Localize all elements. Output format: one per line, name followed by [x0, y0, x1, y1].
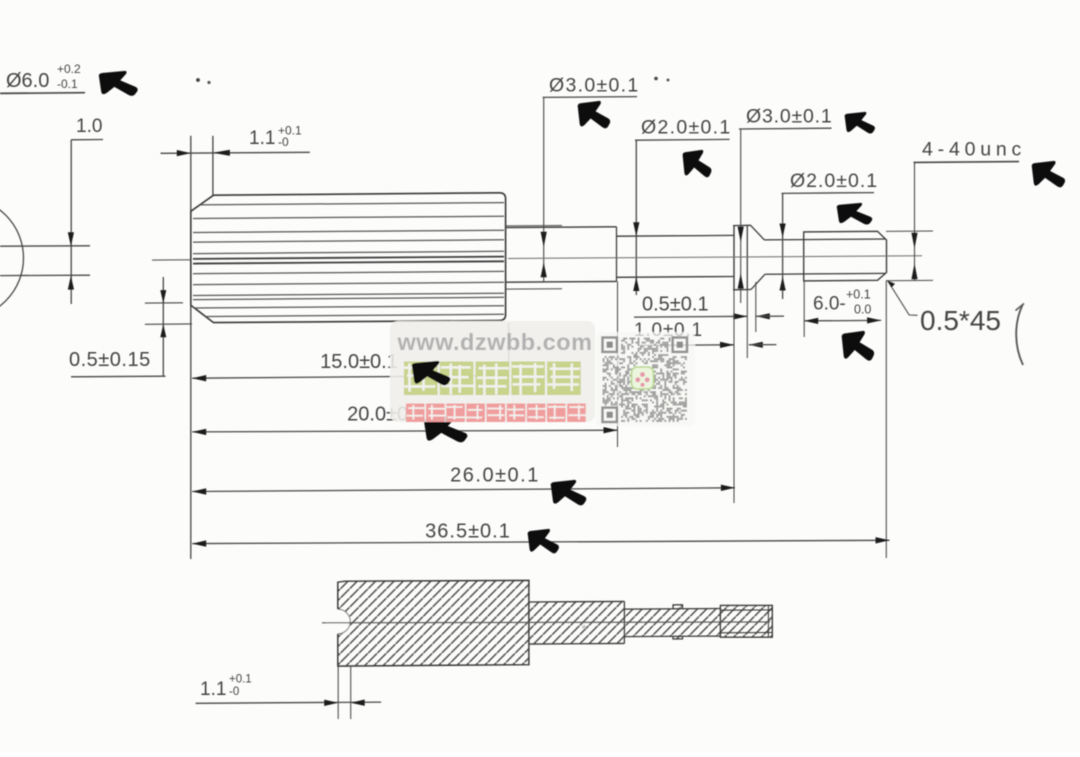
svg-text:6.0-: 6.0- [813, 294, 846, 315]
svg-text:+0.2: +0.2 [57, 62, 81, 76]
svg-text:Ø3.0±0.1: Ø3.0±0.1 [746, 106, 833, 128]
svg-text:15.0±0.1: 15.0±0.1 [320, 351, 398, 373]
svg-text:Ø2.0±0.1: Ø2.0±0.1 [641, 117, 732, 139]
svg-text:0.5±0.1: 0.5±0.1 [642, 294, 709, 316]
svg-text:Ø6.0: Ø6.0 [6, 70, 49, 92]
svg-text:-0: -0 [229, 686, 239, 698]
svg-text:36.5±0.1: 36.5±0.1 [425, 521, 511, 543]
svg-text:Ø2.0±0.1: Ø2.0±0.1 [790, 170, 878, 192]
svg-text:0.5*45: 0.5*45 [920, 305, 1001, 336]
svg-text:0.5±0.15: 0.5±0.15 [69, 349, 151, 371]
svg-text:1.1: 1.1 [200, 679, 226, 700]
svg-text:1.0: 1.0 [76, 116, 102, 137]
svg-text:-0.1: -0.1 [57, 77, 78, 91]
svg-text:www.dzwbb.com: www.dzwbb.com [397, 329, 593, 355]
svg-text:4-40unc: 4-40unc [922, 139, 1026, 161]
svg-text:Ø3.0±0.1: Ø3.0±0.1 [549, 75, 640, 97]
svg-text:0.0: 0.0 [854, 303, 871, 317]
svg-text:+0.1: +0.1 [229, 674, 252, 686]
svg-text:26.0±0.1: 26.0±0.1 [450, 465, 540, 487]
svg-text:+0.1: +0.1 [846, 288, 871, 302]
svg-text:1.1: 1.1 [249, 128, 275, 149]
svg-text:-0: -0 [278, 135, 289, 149]
